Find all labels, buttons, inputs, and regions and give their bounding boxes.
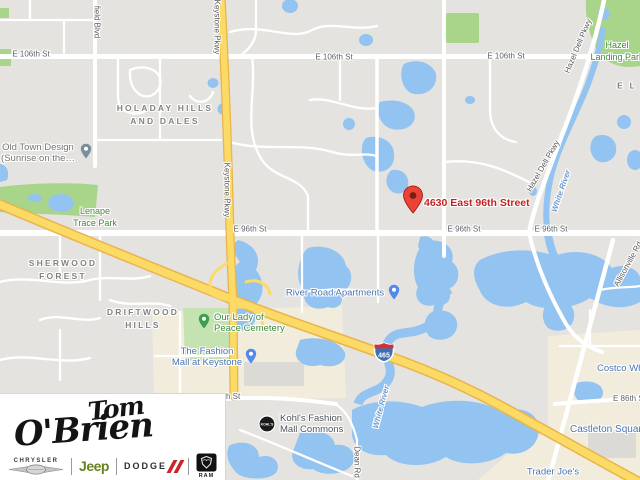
- street-label-106th-3: E 106th St: [487, 52, 524, 61]
- neighborhood-holaday-hills: HOLADAY HILLSAND DALES: [117, 102, 214, 128]
- street-label-96th-3: E 96th St: [535, 225, 568, 234]
- dealer-logo-box: Tom O'Brien CHRYSLER Jeep DODGE: [0, 393, 226, 480]
- brand-separator: [188, 458, 189, 475]
- ram-logo: RAM: [196, 453, 217, 479]
- river-road-apartments-pin[interactable]: [388, 284, 400, 301]
- ram-head-icon: [196, 453, 217, 472]
- cemetery-pin[interactable]: [198, 313, 210, 330]
- chrysler-wing-icon: [8, 464, 64, 475]
- poi-label-our-lady-of-peace: Our Lady ofPeace Cemetery: [214, 312, 285, 334]
- jeep-logo: Jeep: [79, 458, 109, 474]
- street-label-106th-1: E 106th St: [12, 50, 49, 59]
- street-label-106th-2: E 106th St: [315, 53, 352, 62]
- svg-text:KOHL'S: KOHL'S: [261, 422, 274, 426]
- street-label-96th-2: E 96th St: [448, 225, 481, 234]
- poi-label-costco: Costco Whole: [597, 363, 640, 374]
- map-viewport[interactable]: E 106th St E 106th St E 106th St E 96th …: [0, 0, 640, 480]
- brand-logo-row: CHRYSLER Jeep DODGE: [0, 451, 225, 480]
- old-town-design-pin[interactable]: [80, 143, 92, 160]
- street-label-96th-1: E 96th St: [234, 225, 267, 234]
- dodge-logo: DODGE: [124, 460, 181, 473]
- destination-marker[interactable]: [402, 185, 424, 221]
- road-label-keystone-2: Keystone Pkwy: [223, 163, 232, 218]
- poi-label-trader-joes: Trader Joe's: [527, 467, 579, 478]
- street-label-86th: E 86th St: [613, 394, 640, 403]
- park-label-lenape-trace: LenapeTrace Park: [73, 205, 117, 229]
- neighborhood-partial: E L: [617, 80, 637, 93]
- road-label-field-blvd: field Blvd: [93, 6, 102, 38]
- dealer-script-obrien: O'Brien: [13, 405, 154, 455]
- road-label-dean-rd: Dean Rd: [353, 446, 362, 478]
- chrysler-logo: CHRYSLER: [8, 458, 64, 475]
- interstate-465-shield: 465: [372, 341, 396, 363]
- road-label-keystone-1: Keystone Pkwy: [213, 0, 222, 54]
- poi-label-castleton-square: Castleton Squar: [570, 424, 640, 435]
- poi-label-fashion-mall: The FashionMall at Keystone: [172, 346, 242, 368]
- neighborhood-driftwood-hills: DRIFTWOODHILLS: [107, 306, 179, 332]
- poi-label-old-town-design: Old Town Design(Sunrise on the…: [1, 142, 75, 164]
- kohls-logo-badge[interactable]: KOHL'S: [258, 415, 276, 433]
- brand-separator: [116, 458, 117, 475]
- poi-label-river-road-apartments: River Road Apartments: [286, 288, 384, 299]
- park-label-hazel-landing: HazelLanding Park: [590, 39, 640, 63]
- neighborhood-sherwood-forest: SHERWOODFOREST: [29, 257, 97, 283]
- brand-separator: [71, 458, 72, 475]
- destination-label: 4630 East 96th Street: [424, 197, 530, 209]
- poi-label-kohls: Kohl's FashionMall Commons: [280, 413, 343, 435]
- svg-text:465: 465: [378, 353, 390, 360]
- street-label-fragment: h St: [226, 392, 240, 401]
- fashion-mall-pin[interactable]: [245, 348, 257, 365]
